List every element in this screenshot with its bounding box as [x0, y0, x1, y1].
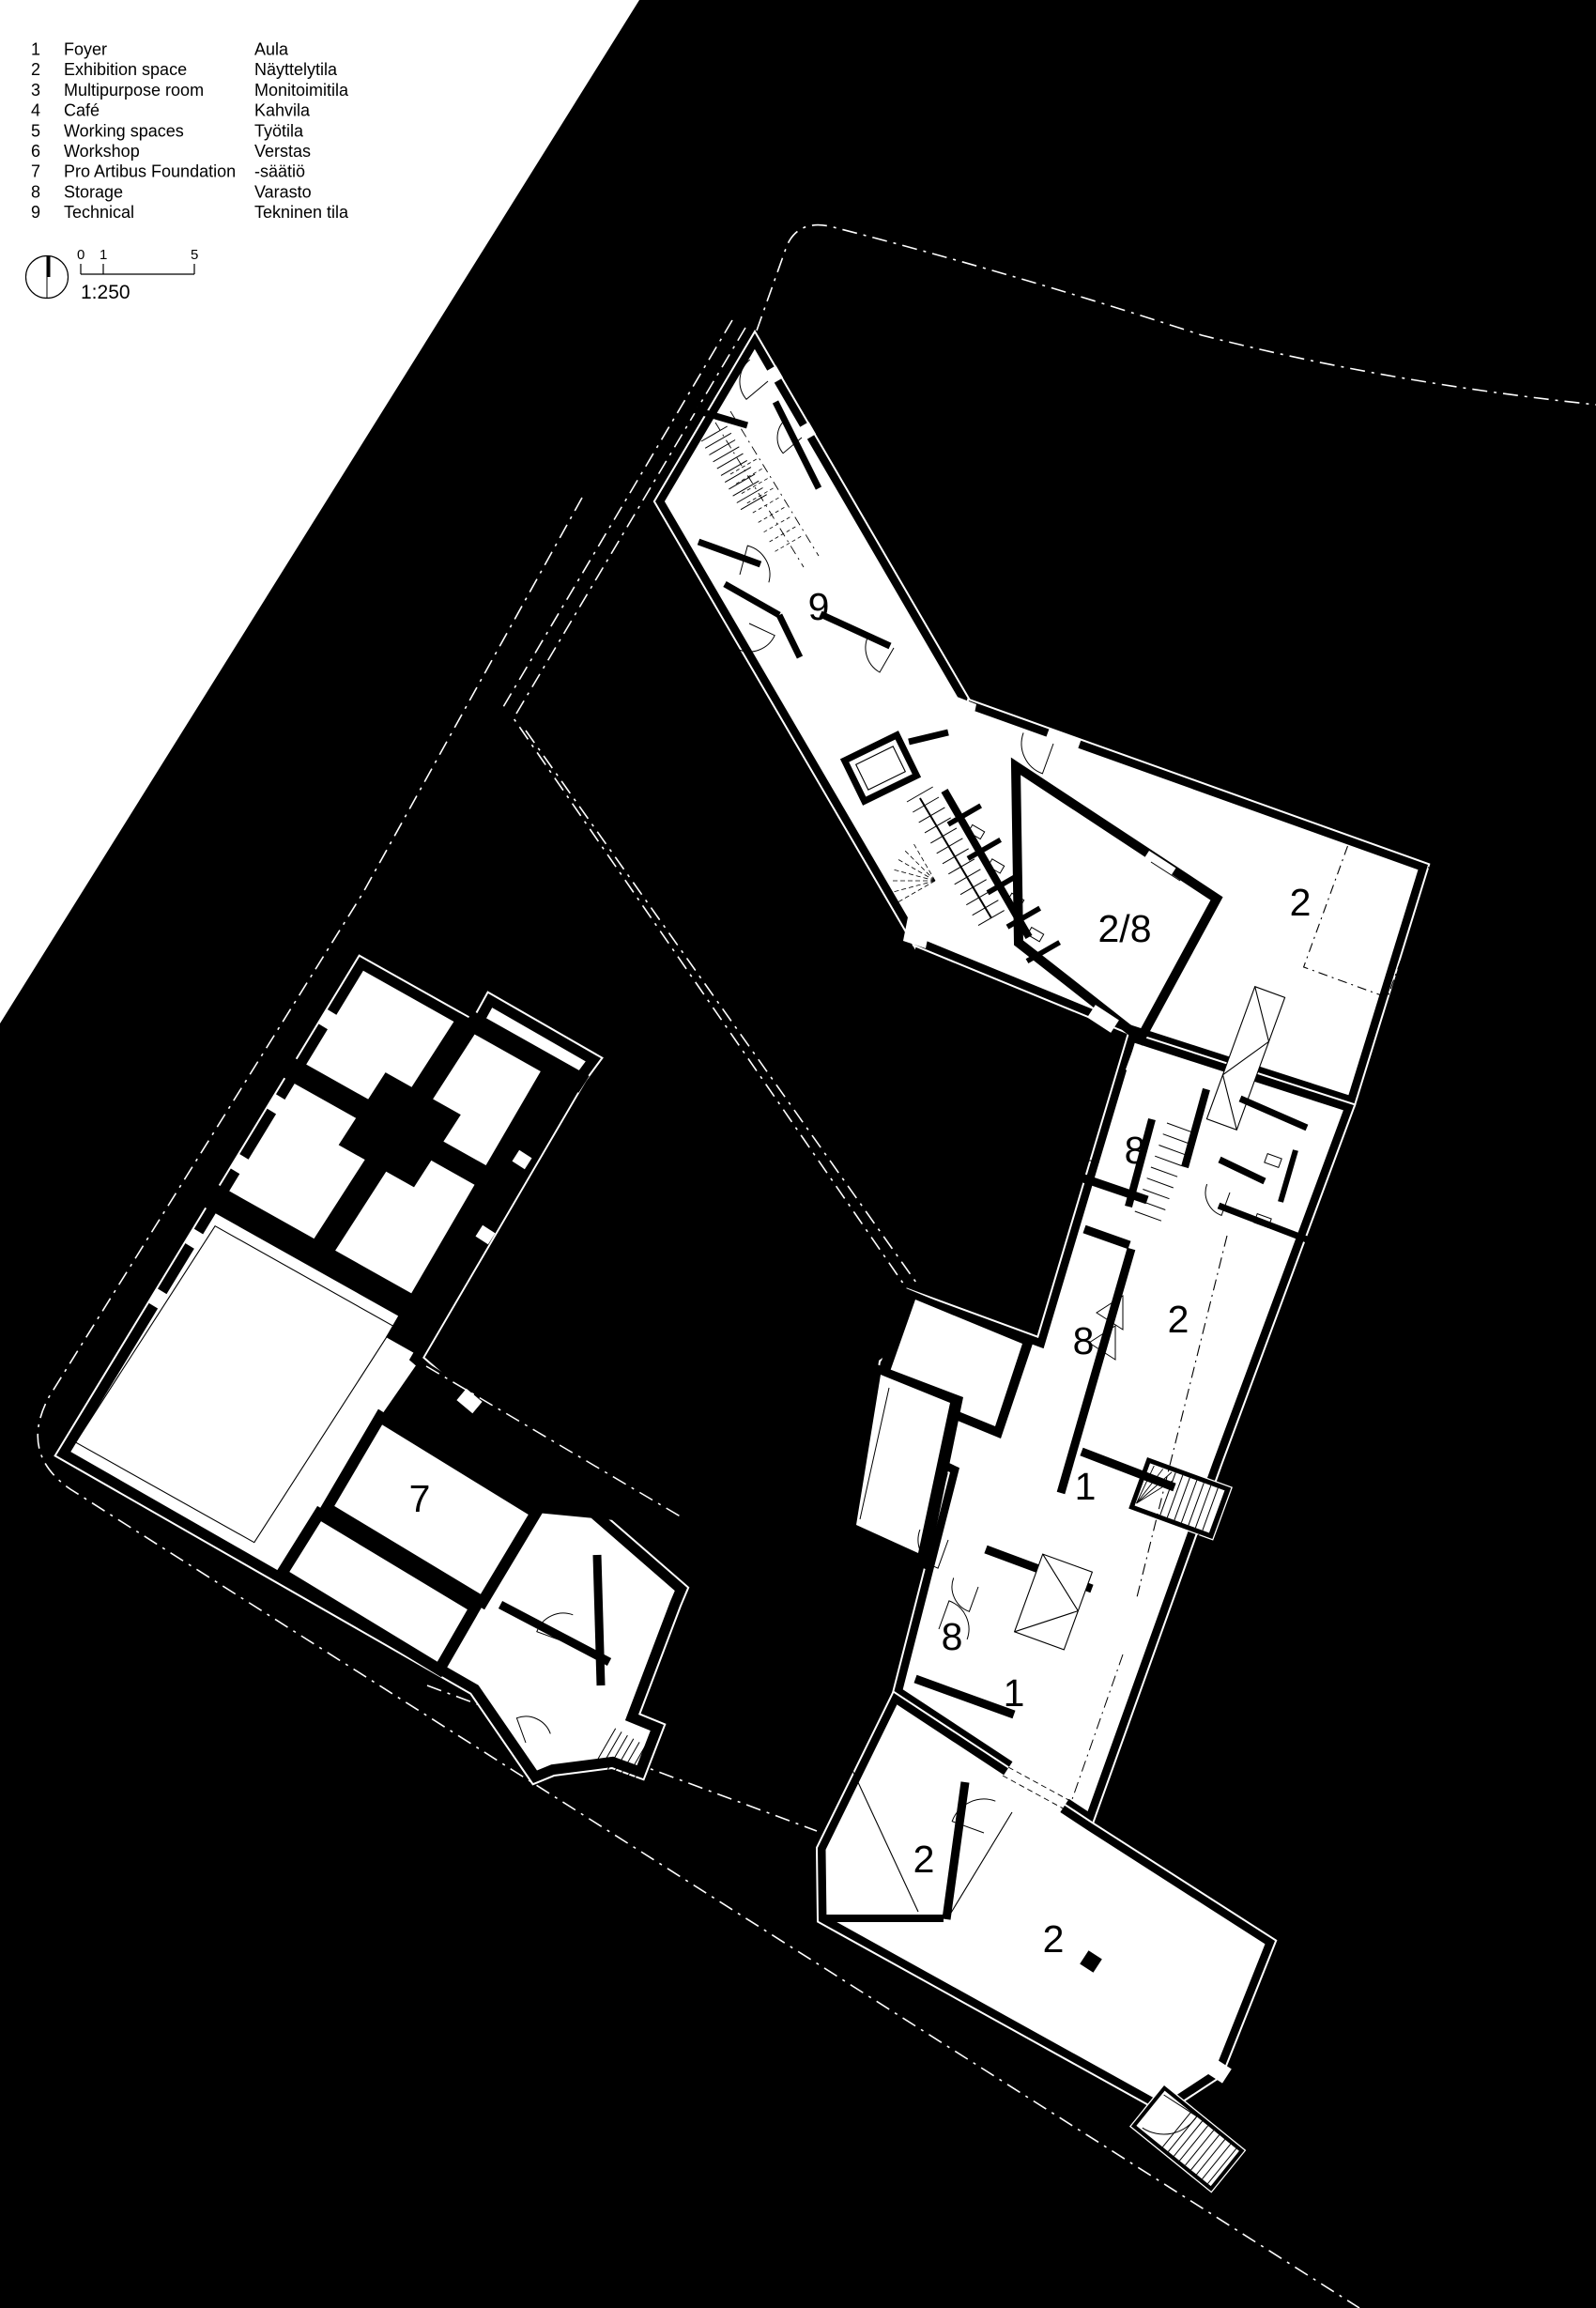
svg-text:-säätiö: -säätiö: [254, 162, 305, 181]
svg-text:Technical: Technical: [64, 203, 134, 222]
svg-text:2: 2: [1043, 1917, 1065, 1961]
svg-text:Multipurpose room: Multipurpose room: [64, 81, 204, 100]
svg-text:4: 4: [31, 101, 40, 120]
svg-text:Storage: Storage: [64, 182, 123, 201]
svg-text:Kahvila: Kahvila: [254, 101, 311, 120]
svg-text:Työtila: Työtila: [254, 121, 304, 140]
svg-text:1: 1: [1004, 1671, 1025, 1715]
svg-text:6: 6: [31, 142, 40, 161]
svg-text:0: 0: [77, 247, 84, 263]
svg-text:8: 8: [31, 182, 40, 201]
svg-text:Varasto: Varasto: [254, 182, 312, 201]
svg-text:2: 2: [1168, 1298, 1189, 1341]
svg-text:Café: Café: [64, 101, 100, 120]
svg-text:Monitoimitila: Monitoimitila: [254, 81, 349, 100]
svg-text:3: 3: [31, 81, 40, 100]
svg-text:9: 9: [31, 203, 40, 222]
svg-text:8: 8: [1125, 1129, 1146, 1172]
svg-text:Aula: Aula: [254, 40, 289, 59]
svg-text:Verstas: Verstas: [254, 142, 311, 161]
svg-text:5: 5: [191, 247, 198, 263]
svg-text:1:250: 1:250: [81, 282, 130, 303]
svg-text:2: 2: [913, 1838, 935, 1881]
svg-text:2: 2: [31, 60, 40, 79]
svg-text:Foyer: Foyer: [64, 40, 107, 59]
svg-text:Näyttelytila: Näyttelytila: [254, 60, 338, 79]
svg-text:Exhibition space: Exhibition space: [64, 60, 187, 79]
svg-text:2/8: 2/8: [1098, 907, 1152, 950]
svg-text:1: 1: [100, 247, 107, 263]
svg-text:8: 8: [1073, 1319, 1095, 1362]
svg-text:9: 9: [808, 585, 830, 628]
svg-text:1: 1: [31, 40, 40, 59]
svg-text:Tekninen tila: Tekninen tila: [254, 203, 349, 222]
svg-text:2: 2: [1290, 881, 1312, 924]
svg-text:7: 7: [409, 1477, 431, 1520]
svg-text:7: 7: [31, 162, 40, 181]
svg-text:1: 1: [1075, 1465, 1097, 1508]
svg-text:Workshop: Workshop: [64, 142, 140, 161]
svg-text:8: 8: [942, 1615, 963, 1658]
svg-text:Working spaces: Working spaces: [64, 121, 184, 140]
svg-text:Pro Artibus Foundation: Pro Artibus Foundation: [64, 162, 236, 181]
svg-text:5: 5: [31, 121, 40, 140]
